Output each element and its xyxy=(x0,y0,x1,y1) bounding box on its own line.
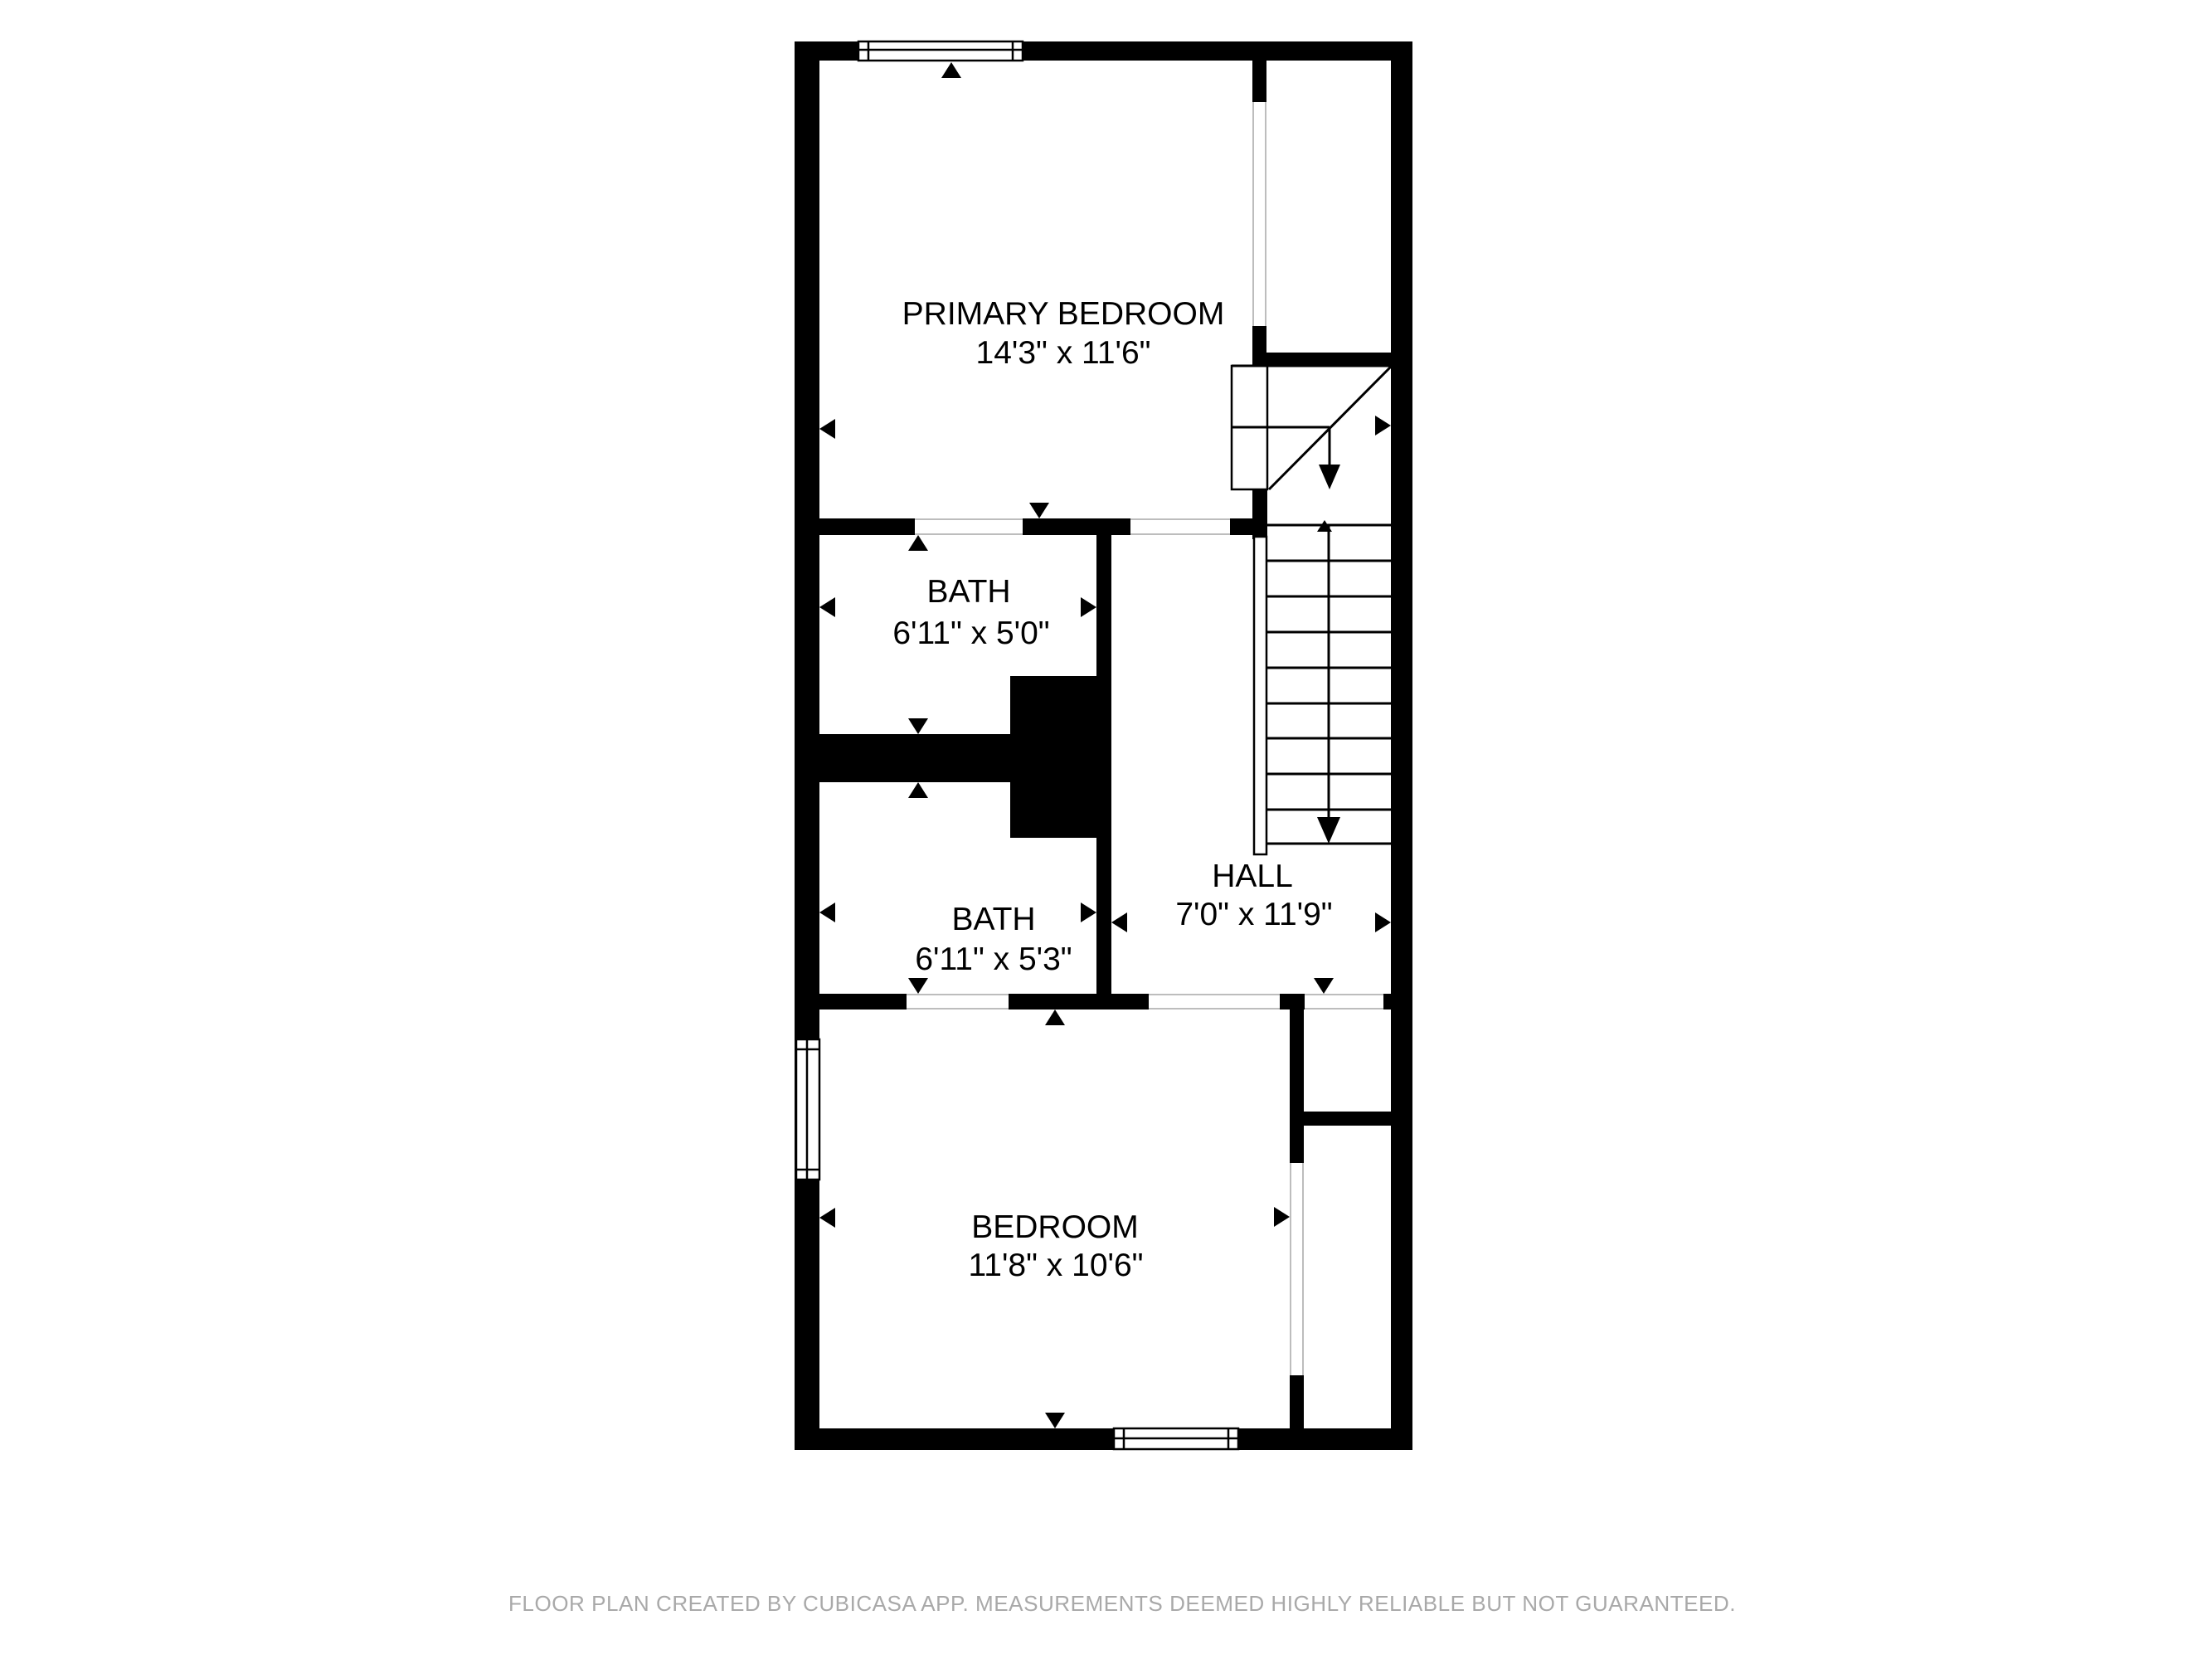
opening-bedroom-closet xyxy=(1291,1163,1303,1375)
arrow-bedroom-down xyxy=(1045,1413,1065,1428)
wall-closet-vertical-upper xyxy=(1290,1010,1304,1163)
wall-right xyxy=(1391,41,1412,1450)
wall-bath-top-b xyxy=(1023,518,1130,535)
opening-hall-closet xyxy=(1305,995,1383,1009)
arrow-bedroom-up xyxy=(1045,1010,1065,1025)
staircase xyxy=(1232,366,1391,854)
opening-bedroom-bath xyxy=(907,995,1009,1009)
opening-primary-hall xyxy=(1130,519,1230,534)
floor-plan-drawing: PRIMARY BEDROOM 14'3" x 11'6" BATH 6'11"… xyxy=(0,0,2212,1659)
opening-primary-bath xyxy=(915,519,1023,534)
stair-winder-arrow-down xyxy=(1319,465,1340,489)
wall-landing-bottom xyxy=(1252,353,1412,365)
wall-hall-bottom-a xyxy=(819,994,907,1010)
hall-dimensions: 7'0" x 11'9" xyxy=(1175,897,1332,932)
primary-bedroom-dimensions: 14'3" x 11'6" xyxy=(976,335,1151,371)
arrow-primary-down xyxy=(1029,503,1049,518)
opening-hall-bedroom xyxy=(1149,995,1280,1009)
stair-run-arrow-down xyxy=(1317,817,1340,844)
arrow-primary-right xyxy=(1375,416,1391,435)
wall-landing-left-upper xyxy=(1252,61,1266,102)
arrow-bedroom-left xyxy=(819,1208,835,1228)
arrow-hall-down xyxy=(1314,978,1334,994)
wall-bottom xyxy=(795,1428,1412,1450)
hall-label: HALL xyxy=(1212,859,1293,894)
wall-bath-lower-right xyxy=(1096,838,1111,994)
arrow-bedroom-right xyxy=(1274,1207,1290,1227)
opening-landing xyxy=(1253,102,1266,326)
bedroom-label: BEDROOM xyxy=(971,1209,1139,1245)
wall-stair-side-stub xyxy=(1252,489,1267,539)
stair-handrail xyxy=(1254,537,1266,854)
bath-lower-dimensions: 6'11" x 5'3" xyxy=(915,941,1072,977)
arrow-bathup-right xyxy=(1081,597,1096,617)
wall-between-baths xyxy=(819,734,1010,782)
footer-disclaimer: FLOOR PLAN CREATED BY CUBICASA APP. MEAS… xyxy=(508,1591,1736,1616)
arrow-primary-up xyxy=(941,62,961,78)
arrow-bathup-down xyxy=(908,718,928,734)
bath-upper-label: BATH xyxy=(926,574,1010,610)
wall-hall-bottom-d xyxy=(1383,994,1412,1010)
floor-plan-page: PRIMARY BEDROOM 14'3" x 11'6" BATH 6'11"… xyxy=(0,0,2212,1659)
window-bottom xyxy=(1114,1428,1238,1449)
wall-left xyxy=(795,41,819,1450)
window-top xyxy=(858,41,1023,61)
arrow-bathup-left xyxy=(819,597,835,617)
arrow-bathlo-down xyxy=(908,978,928,994)
wall-closet-vertical-lower xyxy=(1290,1375,1304,1428)
wall-bath-upper-right xyxy=(1096,535,1111,676)
arrow-hall-right xyxy=(1375,912,1391,932)
arrow-bathlo-right xyxy=(1081,902,1096,922)
wall-hall-bottom-b xyxy=(1009,994,1149,1010)
arrow-bathup-up xyxy=(908,535,928,551)
wall-hall-bottom-c xyxy=(1280,994,1305,1010)
wall-closet-divider xyxy=(1304,1112,1391,1126)
arrow-hall-left xyxy=(1111,912,1127,932)
wall-bath-top-a xyxy=(819,518,915,535)
bath-lower-label: BATH xyxy=(951,902,1035,937)
bedroom-dimensions: 11'8" x 10'6" xyxy=(969,1248,1144,1283)
arrow-primary-left xyxy=(819,419,835,439)
primary-bedroom-label: PRIMARY BEDROOM xyxy=(902,296,1225,332)
bath-upper-dimensions: 6'11" x 5'0" xyxy=(892,615,1049,651)
window-left xyxy=(796,1039,819,1180)
arrow-bathlo-up xyxy=(908,782,928,798)
chase-block xyxy=(1010,676,1111,838)
arrow-bathlo-left xyxy=(819,902,835,922)
